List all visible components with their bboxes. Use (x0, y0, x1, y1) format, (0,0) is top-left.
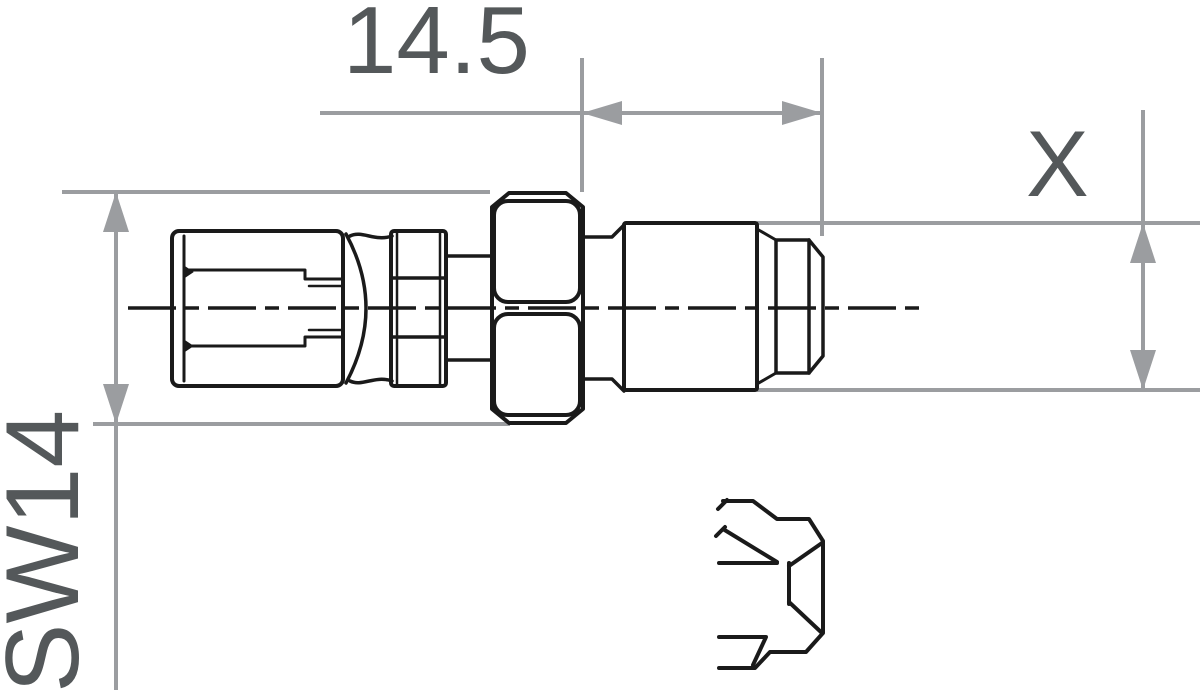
dim-label-hex-width: SW14 (0, 410, 101, 690)
technical-drawing-canvas: 14.5 X SW14 (0, 0, 1200, 690)
detail-right-facet (789, 543, 822, 633)
detail-upper-chamfer (716, 527, 777, 563)
hex-facet-top (494, 201, 580, 302)
detail-lower-chamfer (719, 637, 766, 665)
arrow-up-icon (1130, 223, 1156, 263)
dimension-hex-sw14 (62, 192, 510, 690)
detail-outer-profile (718, 500, 823, 668)
socket-bore-top (184, 270, 343, 279)
hex-facet-bottom (494, 314, 580, 415)
hex-end-detail-view (716, 500, 823, 668)
dimension-labels: 14.5 X SW14 (0, 0, 1089, 690)
olive-bottom-profile (350, 379, 392, 382)
chamfer-mark-icon (184, 340, 193, 352)
fitting-dimension-drawing: 14.5 X SW14 (0, 0, 1200, 690)
arrow-right-icon (782, 101, 822, 125)
neck2-top (583, 225, 624, 237)
olive-top-profile (350, 234, 392, 237)
arrow-down-icon (103, 384, 129, 424)
arrow-down-icon (1130, 350, 1156, 390)
arrow-up-icon (103, 192, 129, 232)
arrow-left-icon (582, 101, 622, 125)
dimension-arrowheads (103, 101, 1156, 424)
socket-bore-bottom (184, 337, 343, 346)
neck2-bottom (583, 379, 624, 391)
dim-label-thread-diameter: X (1026, 111, 1089, 216)
dim-label-length: 14.5 (343, 0, 530, 94)
chamfer-mark-icon (184, 266, 193, 278)
